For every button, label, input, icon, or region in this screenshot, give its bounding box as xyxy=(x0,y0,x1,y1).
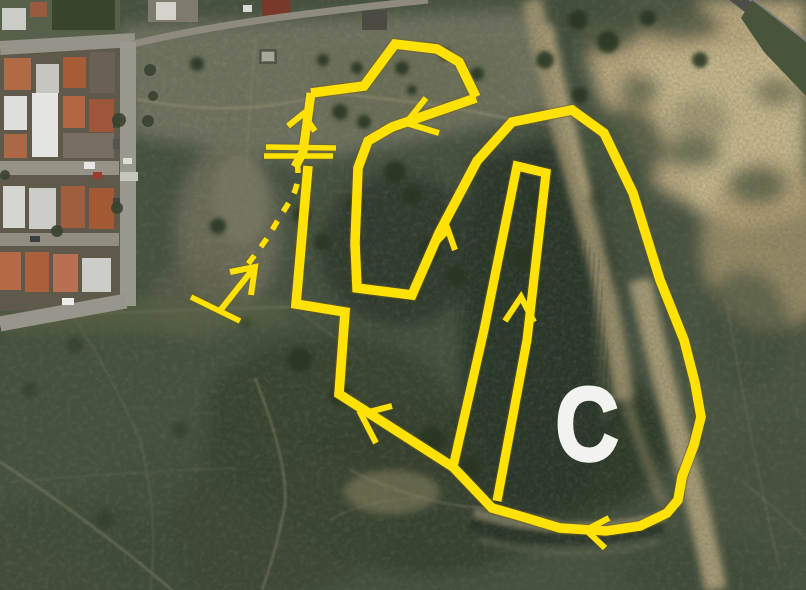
svg-text:C: C xyxy=(555,367,618,483)
